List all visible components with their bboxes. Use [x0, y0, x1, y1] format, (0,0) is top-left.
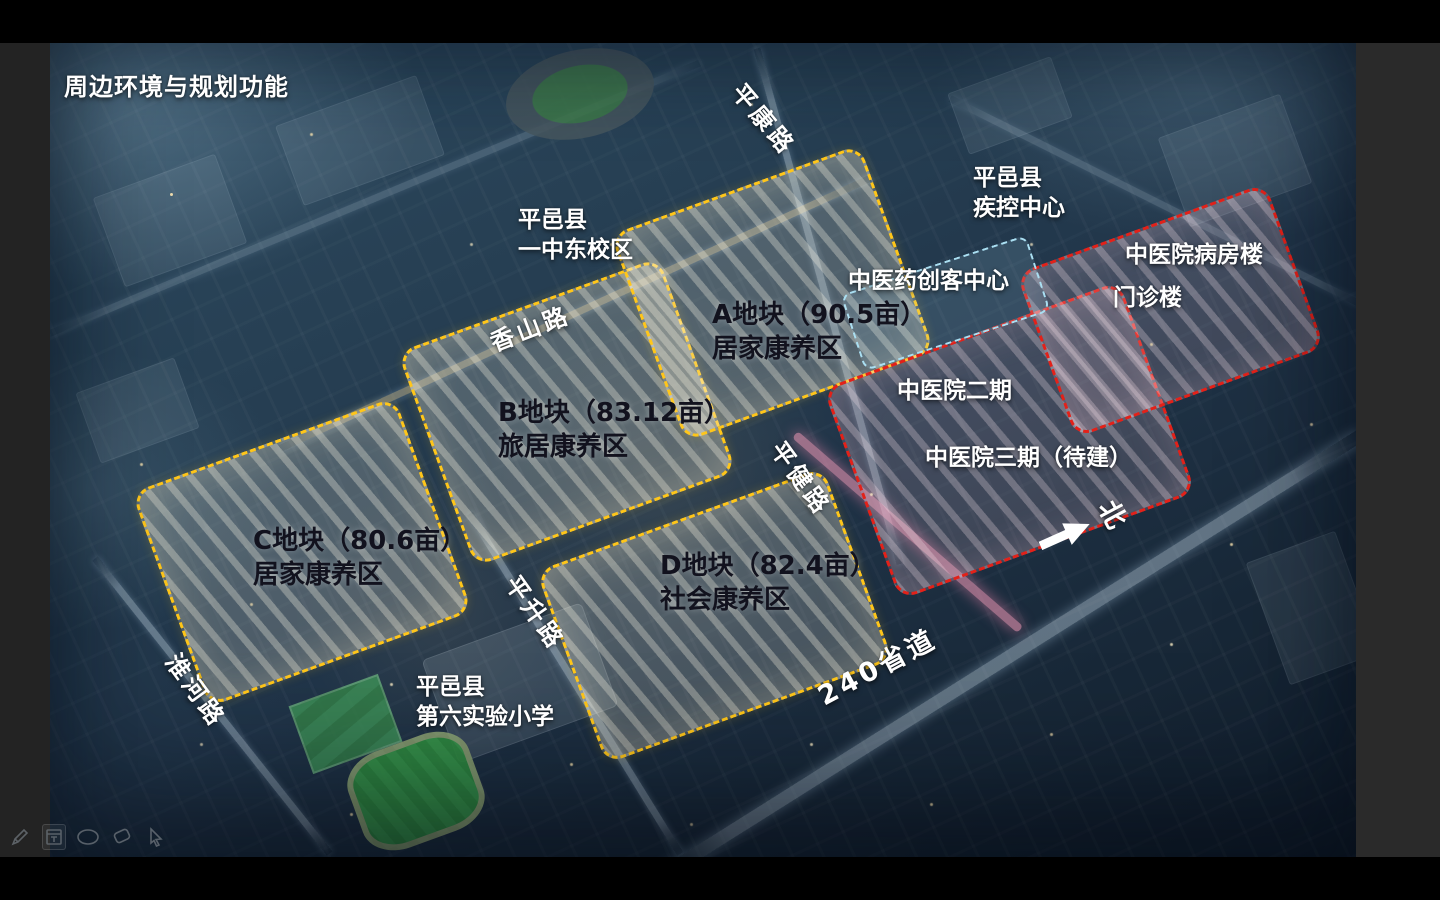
plot-label-line: 社会康养区: [660, 583, 876, 617]
landmark-label-line: 第六实验小学: [416, 702, 554, 732]
landmark-label-outpatient: 门诊楼: [1113, 283, 1182, 313]
landmark-label-maker-center: 中医药创客中心: [848, 266, 1009, 296]
plot-c-label: C地块（80.6亩） 居家康养区: [253, 524, 466, 593]
landmark-label-primary-school: 平邑县 第六实验小学: [416, 672, 554, 733]
plot-b-label: B地块（83.12亩） 旅居康养区: [498, 396, 730, 465]
ellipse-tool-icon[interactable]: [76, 824, 100, 850]
plot-label-line: 居家康养区: [712, 332, 926, 366]
panel-tool-icon[interactable]: [42, 824, 66, 850]
plot-a-label: A地块（90.5亩） 居家康养区: [712, 298, 926, 367]
annotation-toolbar: [8, 820, 168, 854]
plot-label-line: A地块（90.5亩）: [712, 298, 926, 332]
pen-tool-icon[interactable]: [8, 824, 32, 850]
presentation-stage: 周边环境与规划功能 平康路 香山路 平健路 平升路 淮河路 240省道 平邑县 …: [0, 0, 1440, 900]
cursor-tool-icon[interactable]: [144, 824, 168, 850]
landmark-label-hospital-phase2: 中医院二期: [897, 376, 1012, 406]
plot-label-line: C地块（80.6亩）: [253, 524, 466, 558]
landmark-label-school-east: 平邑县 一中东校区: [518, 205, 633, 266]
landmark-label-hospital-phase3: 中医院三期（待建）: [925, 443, 1132, 473]
plot-label-line: B地块（83.12亩）: [498, 396, 730, 430]
letterbox-right: [1356, 43, 1440, 857]
plot-label-line: 居家康养区: [253, 558, 466, 592]
landmark-label-ward-building: 中医院病房楼: [1125, 240, 1263, 270]
landmark-label-line: 平邑县: [416, 672, 554, 702]
landmark-label-line: 平邑县: [518, 205, 633, 235]
landmark-label-line: 一中东校区: [518, 235, 633, 265]
eraser-tool-icon[interactable]: [110, 824, 134, 850]
landmark-label-line: 疾控中心: [973, 193, 1065, 223]
plot-d-label: D地块（82.4亩） 社会康养区: [660, 549, 876, 618]
plot-label-line: D地块（82.4亩）: [660, 549, 876, 583]
landmark-label-line: 平邑县: [973, 163, 1065, 193]
slide-title: 周边环境与规划功能: [64, 72, 289, 104]
plot-label-line: 旅居康养区: [498, 430, 730, 464]
slide-canvas: 周边环境与规划功能 平康路 香山路 平健路 平升路 淮河路 240省道 平邑县 …: [50, 43, 1356, 857]
letterbox-left: [0, 43, 50, 857]
landmark-label-cdc: 平邑县 疾控中心: [973, 163, 1065, 224]
